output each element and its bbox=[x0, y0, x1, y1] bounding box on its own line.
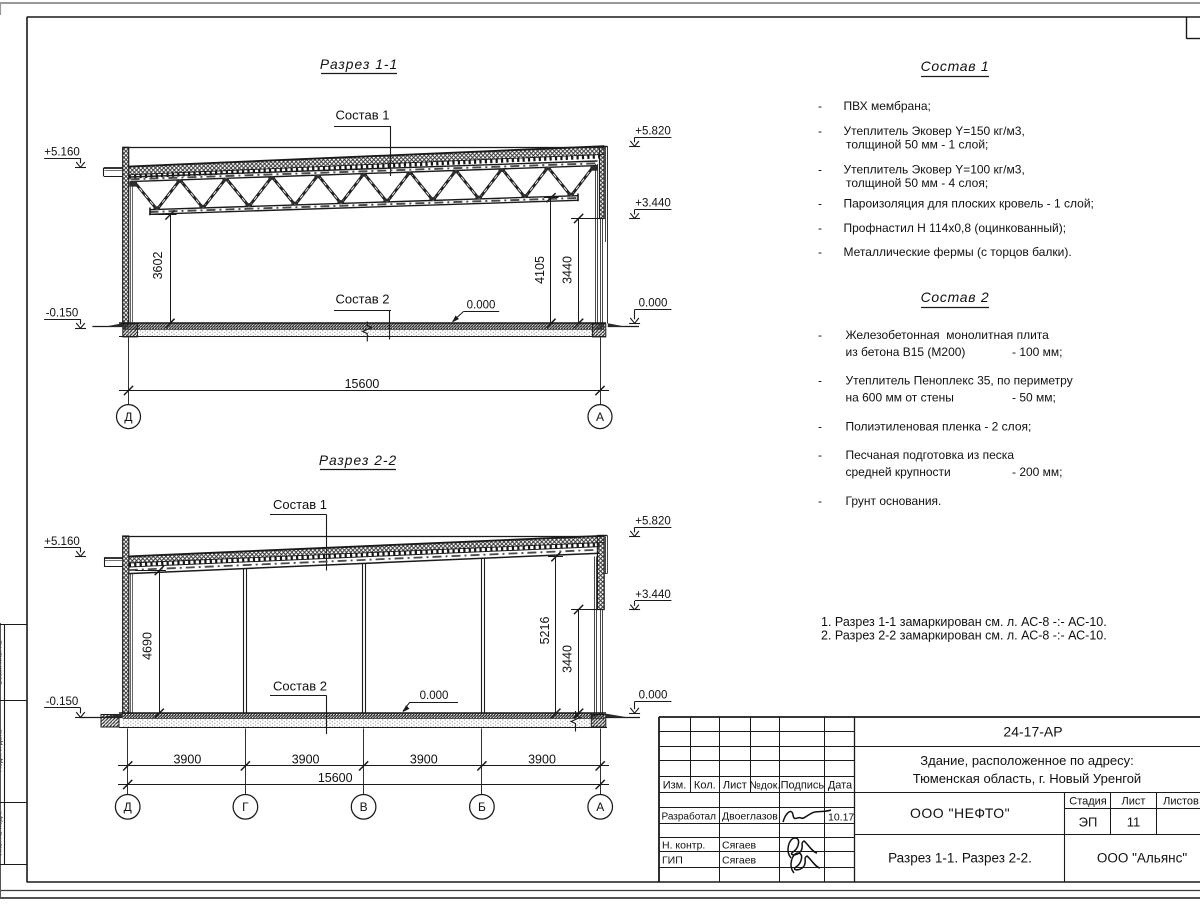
svg-text:- 50 мм;: - 50 мм; bbox=[1012, 391, 1056, 405]
svg-text:15600: 15600 bbox=[318, 771, 353, 785]
svg-text:+5.820: +5.820 bbox=[635, 125, 671, 137]
svg-text:3900: 3900 bbox=[173, 753, 201, 767]
svg-text:Двоеглазов: Двоеглазов bbox=[722, 811, 778, 823]
svg-text:-: - bbox=[818, 162, 822, 176]
svg-text:Состав 1: Состав 1 bbox=[921, 58, 990, 74]
svg-text:3440: 3440 bbox=[561, 256, 575, 284]
svg-text:Д: Д bbox=[124, 800, 132, 814]
svg-text:-: - bbox=[818, 374, 822, 388]
svg-text:Грунт основания.: Грунт основания. bbox=[846, 494, 942, 508]
svg-text:5216: 5216 bbox=[538, 617, 552, 645]
svg-text:Металлические фермы (с торцов: Металлические фермы (с торцов балки). bbox=[844, 245, 1072, 259]
svg-text:Подп. и дата: Подп. и дата bbox=[0, 730, 4, 772]
svg-text:толщиной 50 мм - 4 слоя;: толщиной 50 мм - 4 слоя; bbox=[846, 176, 988, 190]
svg-text:Состав 1: Состав 1 bbox=[273, 497, 327, 512]
svg-text:+5.160: +5.160 bbox=[44, 536, 80, 548]
svg-text:-: - bbox=[818, 494, 822, 508]
svg-text:0.000: 0.000 bbox=[639, 298, 668, 310]
svg-text:Железобетонная монолитная пли: Железобетонная монолитная плита bbox=[846, 328, 1050, 342]
svg-text:Лист: Лист bbox=[1122, 796, 1146, 808]
svg-text:- 100 мм;: - 100 мм; bbox=[1012, 345, 1063, 359]
svg-text:Тюменская область, г. Новый Ур: Тюменская область, г. Новый Уренгой bbox=[913, 771, 1141, 786]
svg-text:Подпись: Подпись bbox=[781, 780, 825, 792]
svg-text:Изм.: Изм. bbox=[663, 780, 687, 792]
svg-text:11: 11 bbox=[1127, 815, 1141, 830]
svg-text:+5.160: +5.160 bbox=[44, 146, 80, 158]
svg-text:0.000: 0.000 bbox=[420, 690, 449, 702]
svg-text:3900: 3900 bbox=[528, 753, 556, 767]
svg-text:3900: 3900 bbox=[410, 753, 438, 767]
svg-text:2. Разрез 2-2 замаркирован см.: 2. Разрез 2-2 замаркирован см. л. АС-8 -… bbox=[821, 629, 1107, 643]
svg-text:3602: 3602 bbox=[151, 252, 165, 280]
svg-text:4690: 4690 bbox=[140, 632, 154, 660]
svg-text:Состав 2: Состав 2 bbox=[273, 679, 327, 694]
svg-text:-: - bbox=[818, 124, 822, 138]
svg-text:Утеплитель Эковер Y=150 кг/м3,: Утеплитель Эковер Y=150 кг/м3, bbox=[844, 124, 1025, 138]
svg-text:10.17: 10.17 bbox=[828, 812, 854, 824]
svg-text:3440: 3440 bbox=[561, 645, 575, 673]
svg-text:Н. контр.: Н. контр. bbox=[662, 840, 705, 852]
svg-text:Полиэтиленовая пленка - 2 слоя: Полиэтиленовая пленка - 2 слоя; bbox=[846, 420, 1032, 434]
svg-text:Разработал: Разработал bbox=[662, 811, 717, 823]
svg-text:А: А bbox=[596, 800, 604, 814]
svg-text:Здание, расположенное по адрес: Здание, расположенное по адресу: bbox=[920, 753, 1133, 768]
svg-text:Д: Д bbox=[124, 410, 132, 424]
svg-text:№док.: №док. bbox=[750, 780, 781, 792]
svg-text:толщиной 50 мм - 1 слой;: толщиной 50 мм - 1 слой; bbox=[846, 137, 988, 151]
svg-text:Утеплитель Эковер Y=100 кг/м3,: Утеплитель Эковер Y=100 кг/м3, bbox=[844, 162, 1025, 176]
svg-text:Состав 1: Состав 1 bbox=[336, 108, 390, 123]
svg-text:ЭП: ЭП bbox=[1079, 815, 1098, 830]
svg-text:Утеплитель Пеноплекс 35, по пе: Утеплитель Пеноплекс 35, по периметру bbox=[846, 374, 1073, 388]
svg-text:+5.820: +5.820 bbox=[635, 515, 671, 527]
svg-text:Инв. № подл.: Инв. № подл. bbox=[0, 811, 4, 856]
svg-text:-: - bbox=[818, 99, 822, 113]
svg-text:Сягаев: Сягаев bbox=[722, 840, 757, 852]
svg-text:Стадия: Стадия bbox=[1069, 796, 1107, 808]
svg-text:-: - bbox=[818, 328, 822, 342]
svg-text:А: А bbox=[596, 410, 604, 424]
svg-text:Кол.: Кол. bbox=[694, 780, 716, 792]
svg-text:4105: 4105 bbox=[533, 256, 547, 284]
svg-text:Разрез 1-1. Разрез 2-2.: Разрез 1-1. Разрез 2-2. bbox=[888, 851, 1032, 866]
svg-text:Состав 2: Состав 2 bbox=[921, 289, 990, 305]
svg-text:-: - bbox=[818, 221, 822, 235]
svg-text:0.000: 0.000 bbox=[467, 299, 496, 311]
svg-text:3900: 3900 bbox=[292, 753, 320, 767]
svg-text:Состав 2: Состав 2 bbox=[336, 292, 390, 307]
svg-text:-0.150: -0.150 bbox=[46, 307, 79, 319]
svg-text:ПВХ мембрана;: ПВХ мембрана; bbox=[844, 99, 931, 113]
svg-text:- 200 мм;: - 200 мм; bbox=[1012, 465, 1063, 479]
svg-text:Разрез 1-1: Разрез 1-1 bbox=[320, 57, 398, 72]
svg-text:на 600 мм от стены: на 600 мм от стены bbox=[846, 391, 954, 405]
svg-text:-0.150: -0.150 bbox=[46, 696, 79, 708]
svg-text:-: - bbox=[818, 196, 822, 210]
svg-text:Г: Г bbox=[242, 800, 249, 814]
svg-text:Пароизоляция для плоских крове: Пароизоляция для плоских кровель - 1 сло… bbox=[844, 196, 1094, 210]
svg-text:Листов: Листов bbox=[1163, 796, 1199, 808]
svg-text:Взам. инв. №: Взам. инв. № bbox=[0, 640, 4, 685]
svg-text:Дата: Дата bbox=[828, 780, 853, 792]
svg-text:Сягаев: Сягаев bbox=[722, 855, 757, 867]
svg-text:-: - bbox=[818, 448, 822, 462]
svg-text:ГИП: ГИП bbox=[662, 855, 683, 867]
svg-text:15600: 15600 bbox=[345, 377, 380, 391]
svg-text:-: - bbox=[818, 245, 822, 259]
svg-text:средней крупности: средней крупности bbox=[846, 465, 951, 479]
svg-text:+3.440: +3.440 bbox=[635, 589, 671, 601]
svg-text:0.000: 0.000 bbox=[639, 690, 668, 702]
svg-text:Лист: Лист bbox=[723, 780, 747, 792]
svg-text:24-17-АР: 24-17-АР bbox=[1003, 724, 1062, 740]
svg-text:-: - bbox=[818, 420, 822, 434]
svg-text:Разрез 2-2: Разрез 2-2 bbox=[319, 453, 397, 468]
svg-text:Б: Б bbox=[478, 800, 486, 814]
svg-text:+3.440: +3.440 bbox=[635, 198, 671, 210]
svg-text:Профнастил Н 114х0,8 (оцинкова: Профнастил Н 114х0,8 (оцинкованный); bbox=[844, 221, 1067, 235]
svg-text:ООО "НЕФТО": ООО "НЕФТО" bbox=[910, 805, 1010, 821]
svg-text:Песчаная подготовка из песка: Песчаная подготовка из песка bbox=[846, 448, 1015, 462]
svg-text:В: В bbox=[360, 800, 368, 814]
svg-text:ООО "Альянс": ООО "Альянс" bbox=[1097, 851, 1187, 866]
svg-text:1. Разрез 1-1 замаркирован см.: 1. Разрез 1-1 замаркирован см. л. АС-8 -… bbox=[821, 615, 1107, 629]
svg-text:из бетона В15 (М200): из бетона В15 (М200) bbox=[846, 345, 966, 359]
